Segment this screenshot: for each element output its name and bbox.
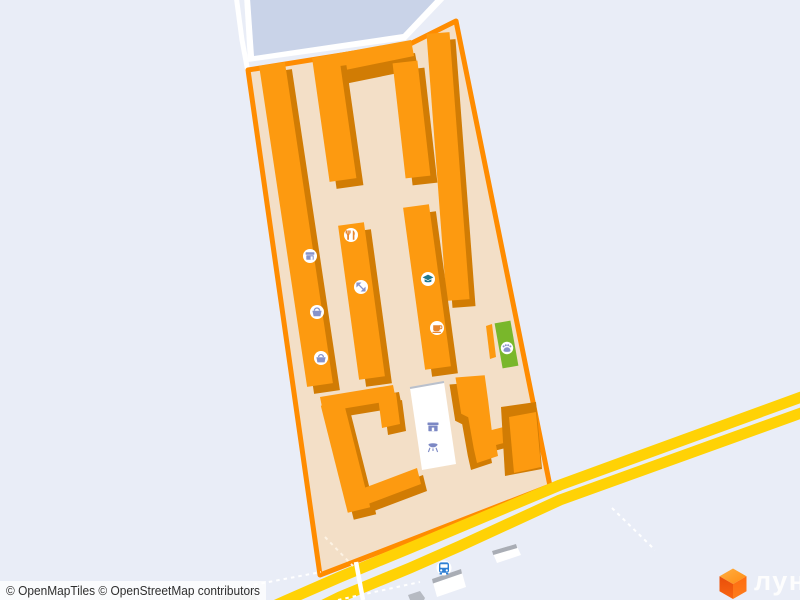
svg-text:© OpenMapTiles © OpenStreetMap: © OpenMapTiles © OpenStreetMap contribut… [6,583,260,598]
svg-text:лун: лун [754,566,800,596]
